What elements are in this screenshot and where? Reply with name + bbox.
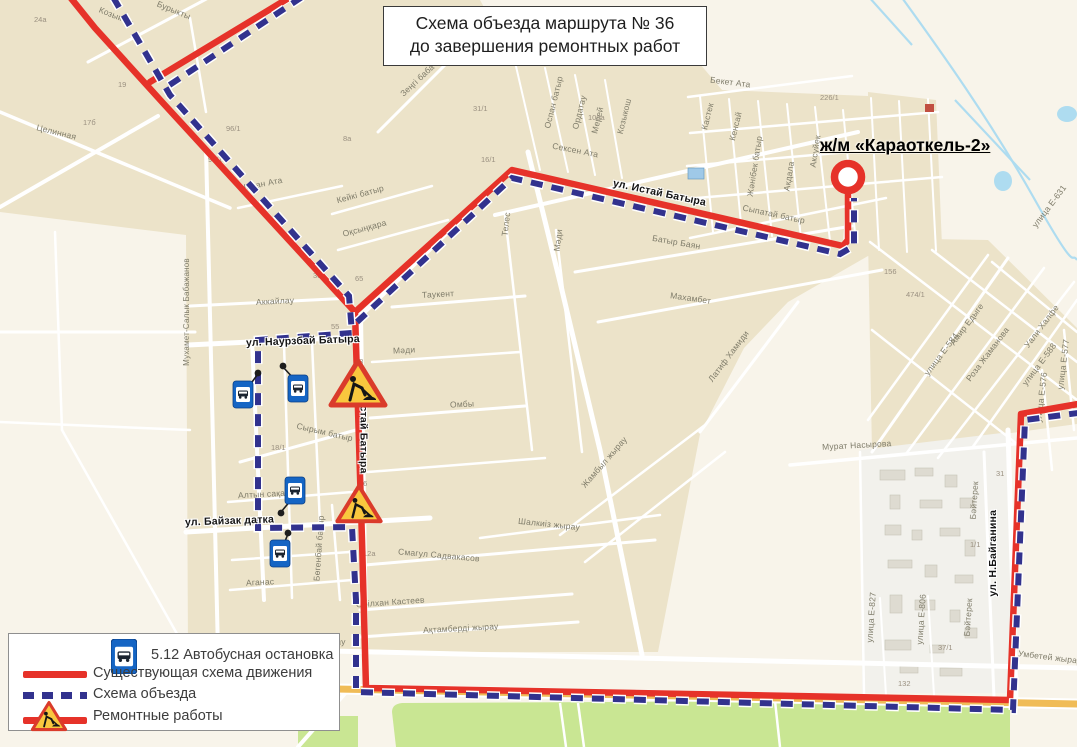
- bus-stop-icon: [233, 381, 253, 408]
- bus-stop-callout-dots: [255, 363, 292, 537]
- title-line-2: до завершения ремонтных работ: [388, 35, 702, 58]
- legend: 5.12 Автобусная остановка Существующая с…: [8, 633, 340, 731]
- title-box: Схема объезда маршрута № 36 до завершени…: [383, 6, 707, 66]
- bus-stop-icon: [270, 540, 290, 567]
- destination-label: ж/м «Караоткель-2»: [820, 135, 990, 156]
- map-canvas[interactable]: Целинная Козыкош Бурыкты Шопан Ата Мухам…: [0, 0, 1077, 747]
- solid-line-swatch: [23, 671, 87, 678]
- legend-label-existing-route: Существующая схема движения: [93, 665, 312, 681]
- route-terminus-marker: [835, 164, 862, 191]
- roadworks-sign-icon: [25, 696, 73, 736]
- roadworks-sign-icon: [337, 486, 380, 521]
- roadworks-sign-icon: [331, 361, 385, 405]
- title-line-1: Схема объезда маршрута № 36: [388, 12, 702, 35]
- bus-stop-icon: [285, 477, 305, 504]
- legend-label-bus-stop: 5.12 Автобусная остановка: [151, 647, 333, 663]
- bus-stop-icon: [288, 375, 308, 402]
- legend-label-detour: Схема объезда: [93, 686, 196, 702]
- legend-label-roadworks: Ремонтные работы: [93, 708, 223, 724]
